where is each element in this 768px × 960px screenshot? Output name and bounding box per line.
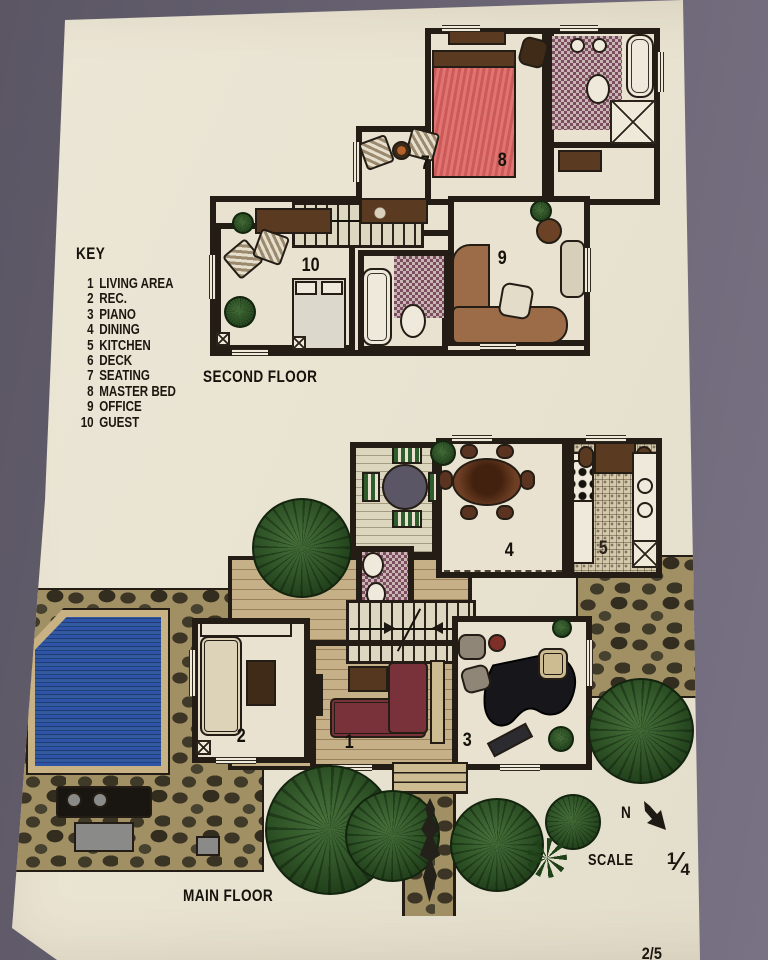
- room-label-2: 2: [237, 726, 246, 748]
- window: [189, 650, 196, 696]
- window: [452, 435, 492, 442]
- side-table: [488, 634, 506, 652]
- key-title: KEY: [76, 244, 176, 264]
- bathtub: [626, 34, 654, 98]
- console-table: [430, 660, 445, 744]
- scale-note: SCALE 1 ⁄ 4 = 1'0: [588, 852, 731, 878]
- key-item: 3PIANO: [76, 308, 176, 323]
- floor-transition-line: [444, 570, 562, 572]
- window: [586, 640, 593, 686]
- key-item: 4DINING: [76, 323, 176, 338]
- drawing-paper: KEY 1LIVING AREA 2REC. 3PIANO 4DINING 5K…: [0, 0, 768, 960]
- dresser: [558, 150, 602, 172]
- tree: [588, 678, 694, 784]
- credenza: [360, 198, 428, 224]
- bathtub: [362, 268, 392, 346]
- window: [584, 248, 591, 292]
- pool-water: [35, 617, 161, 766]
- kitchen-sink: [637, 502, 653, 518]
- patio-box: [196, 836, 220, 856]
- potted-plant: [232, 212, 254, 234]
- window: [586, 435, 626, 442]
- window: [232, 349, 268, 356]
- scale-equals: = 1'0: [699, 853, 729, 869]
- potted-plant: [430, 440, 456, 466]
- window: [560, 25, 598, 32]
- grill-burner: [66, 792, 82, 808]
- armchair: [497, 281, 534, 320]
- deck-chair: [362, 472, 380, 502]
- floor-vent: [292, 336, 306, 350]
- pillow: [321, 281, 343, 295]
- deck-chair: [392, 510, 422, 528]
- room-label-4: 4: [505, 540, 514, 562]
- key-item: 6DECK: [76, 354, 176, 369]
- key-item: 10GUEST: [76, 416, 176, 431]
- bathroom-sink: [362, 552, 384, 578]
- stair-direction-arrow: [384, 622, 395, 634]
- window: [500, 764, 540, 771]
- window: [209, 255, 216, 299]
- bathroom-sink: [592, 38, 607, 53]
- l-sofa: [388, 662, 428, 734]
- coffee-table: [348, 666, 388, 692]
- loveseat: [560, 240, 585, 298]
- sectional-sofa: [200, 636, 242, 736]
- toilet: [586, 74, 610, 104]
- dining-chair: [460, 444, 478, 459]
- kitchen-chair: [578, 446, 594, 468]
- dining-table: [452, 458, 522, 506]
- second-floor-title: SECOND FLOOR: [203, 367, 317, 387]
- potted-plant: [552, 618, 572, 638]
- bathroom-sink: [570, 38, 585, 53]
- key-legend: KEY 1LIVING AREA 2REC. 3PIANO 4DINING 5K…: [76, 244, 201, 431]
- bench: [448, 30, 506, 45]
- key-item: 7SEATING: [76, 369, 176, 384]
- room-label-5: 5: [599, 538, 608, 560]
- deck-table: [382, 464, 428, 510]
- spiky-plant: [527, 838, 567, 878]
- fireplace: [312, 674, 323, 716]
- room-label-9: 9: [498, 248, 507, 270]
- key-item: 2REC.: [76, 292, 176, 307]
- patio-counter: [74, 822, 134, 852]
- scale-fraction-denominator: 4: [681, 861, 690, 878]
- potted-plant: [530, 200, 552, 222]
- north-arrow-icon: [640, 800, 674, 838]
- kitchen-sink: [637, 478, 653, 494]
- room-label-7: 7: [421, 153, 430, 175]
- north-label: N: [621, 803, 631, 823]
- room-label-1: 1: [345, 732, 354, 754]
- side-table: [392, 141, 411, 160]
- floor-vent: [196, 740, 211, 755]
- room-label-10: 10: [302, 255, 320, 277]
- key-item: 1LIVING AREA: [76, 277, 176, 292]
- window: [353, 142, 360, 182]
- window: [442, 25, 480, 32]
- key-item: 9OFFICE: [76, 400, 176, 415]
- dining-chair: [496, 505, 514, 520]
- stair-direction-arrow: [432, 622, 443, 634]
- window: [480, 343, 516, 350]
- coffee-table: [246, 660, 276, 706]
- armchair: [458, 634, 486, 660]
- shrub: [548, 726, 574, 752]
- dining-chair: [496, 444, 514, 459]
- pillow: [295, 281, 317, 295]
- floor-vent: [216, 332, 230, 346]
- window: [216, 757, 256, 764]
- front-porch-steps: [392, 762, 468, 794]
- scale-label: SCALE: [588, 852, 633, 870]
- main-floor-title: MAIN FLOOR: [183, 886, 273, 906]
- window: [657, 52, 664, 92]
- key-item: 5KITCHEN: [76, 339, 176, 354]
- tree: [252, 498, 352, 598]
- potted-plant: [224, 296, 256, 328]
- room-label-8: 8: [498, 150, 507, 172]
- grill-burner: [92, 792, 108, 808]
- breakfast-table: [594, 442, 636, 474]
- toilet: [400, 304, 426, 338]
- photo-of-drawing: KEY 1LIVING AREA 2REC. 3PIANO 4DINING 5K…: [0, 0, 768, 960]
- room-label-3: 3: [463, 730, 472, 752]
- dining-chair: [438, 470, 453, 490]
- scale-fraction-numerator: 1: [667, 850, 676, 867]
- deck-chair: [392, 446, 422, 464]
- wall-unit: [200, 622, 292, 637]
- shower: [610, 100, 656, 144]
- wicker-chair: [538, 648, 568, 680]
- dining-chair: [460, 505, 478, 520]
- dishwasher: [632, 540, 658, 568]
- dining-chair: [520, 470, 535, 490]
- tree: [450, 798, 544, 892]
- swimming-pool: [26, 608, 170, 775]
- key-item: 8MASTER BED: [76, 385, 176, 400]
- page-number: 2/5: [642, 944, 662, 960]
